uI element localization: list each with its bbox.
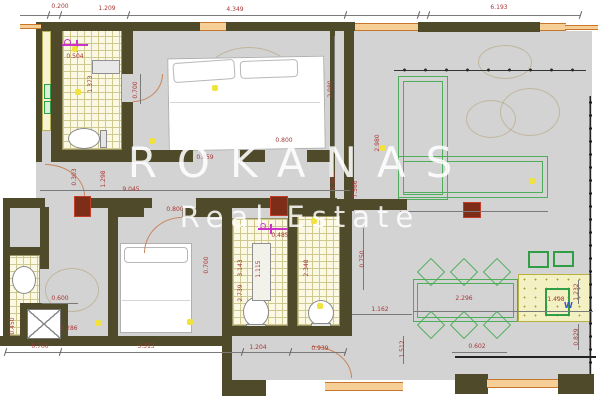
- dimension-label: 1.209: [98, 6, 115, 12]
- dimension-label: 2.980: [328, 80, 334, 97]
- dimension-label: 1.204: [249, 345, 266, 351]
- dimension-label: 0.700: [204, 256, 210, 273]
- dimension-label: 4.349: [226, 7, 243, 13]
- dimension-label: 0.286: [60, 326, 77, 332]
- dimension-label: 1.512: [400, 340, 406, 357]
- watermark-line1: ROKANAS: [0, 138, 600, 187]
- dimension-label: 1.115: [256, 260, 262, 277]
- dimension-label: 0.600: [51, 296, 68, 302]
- dimension-label: 3.143: [238, 259, 244, 276]
- dimension-label: 0.602: [468, 344, 485, 350]
- dimension-label: 1.232: [574, 283, 580, 300]
- dimension-label: 0.450: [10, 317, 16, 334]
- dimension-label: 2.739: [238, 284, 244, 301]
- dimension-label: 9.045: [122, 187, 139, 193]
- dimension-label: 6.193: [490, 5, 507, 11]
- dimension-label: 1.162: [371, 307, 388, 313]
- dimension-label: 1.498: [547, 297, 564, 303]
- watermark-line2: Real Estate: [0, 200, 600, 234]
- dimension-label: 2.348: [304, 259, 310, 276]
- dimension-label: 0.200: [51, 4, 68, 10]
- dimension-label: 0.939: [311, 346, 328, 352]
- dimension-label: 0.700: [133, 81, 139, 98]
- dimension-label: 3.313: [137, 344, 154, 350]
- dimension-label: 0.504: [66, 54, 83, 60]
- dimension-label: 1.373: [88, 75, 94, 92]
- dimension-label: 0.750: [360, 250, 366, 267]
- dimension-label: 0.700: [31, 344, 48, 350]
- floor-plan: W: [0, 0, 600, 400]
- dimension-label: 2.296: [455, 296, 472, 302]
- dimension-label: 0.829: [574, 328, 580, 345]
